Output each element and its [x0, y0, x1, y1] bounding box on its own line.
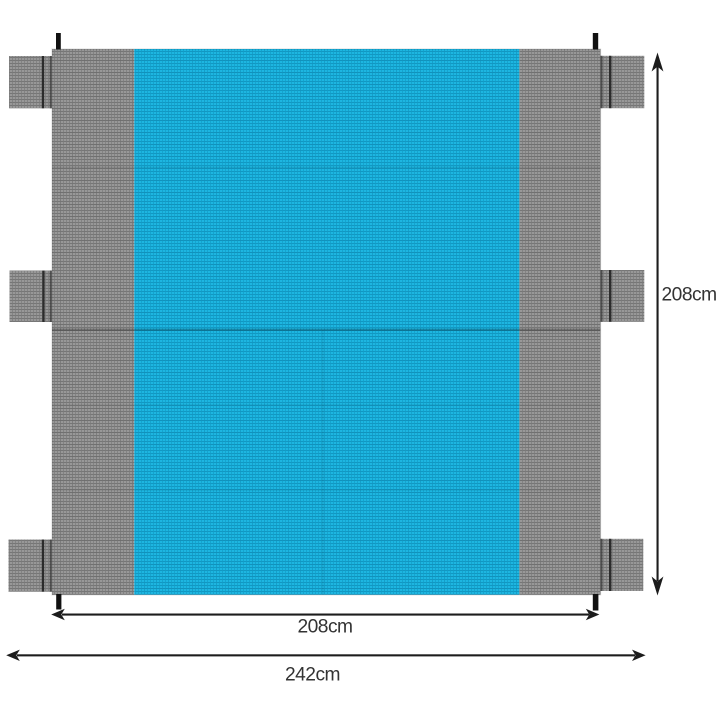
- svg-text:208cm: 208cm: [297, 617, 352, 638]
- svg-text:208cm: 208cm: [662, 284, 717, 305]
- svg-text:242cm: 242cm: [285, 665, 340, 686]
